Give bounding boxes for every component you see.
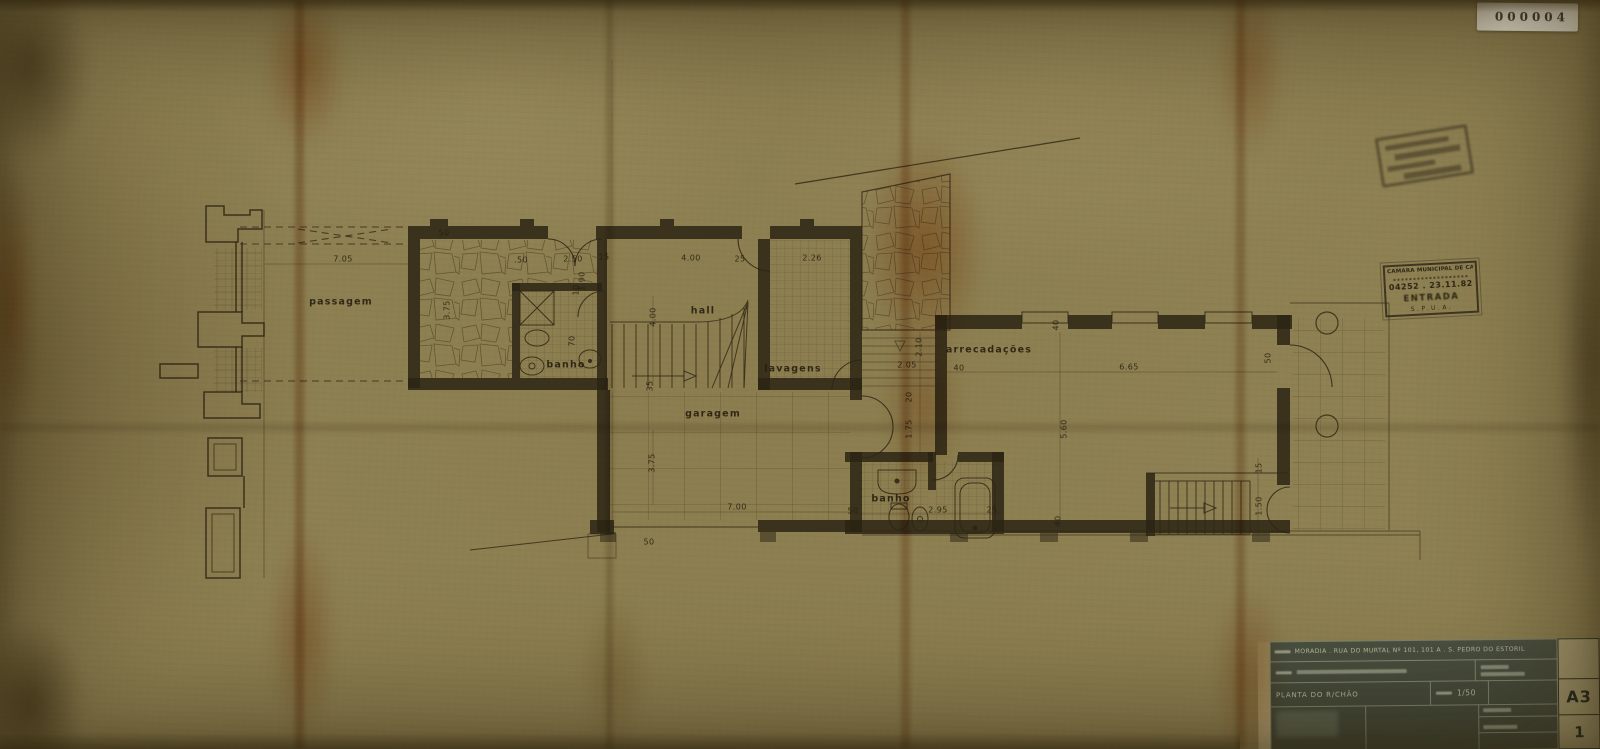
scanned-floor-plan-sheet: passagembanhohalllavagensgaragembanhoarr… bbox=[0, 0, 1600, 749]
sheet-number: 1 bbox=[1559, 715, 1599, 748]
illegible-text bbox=[1297, 669, 1407, 674]
illegible-text bbox=[1481, 671, 1525, 675]
illegible-text bbox=[1436, 692, 1452, 695]
signature-area bbox=[1276, 711, 1338, 738]
floor-plan-drawing bbox=[0, 0, 1600, 749]
project-title: MORADIA . RUA DO MURTAL Nº 101, 101 A . … bbox=[1295, 646, 1525, 655]
title-block-panel: MORADIA . RUA DO MURTAL Nº 101, 101 A . … bbox=[1269, 638, 1558, 749]
archive-number: 000004 bbox=[1495, 10, 1569, 25]
illegible-text bbox=[1275, 650, 1291, 653]
stamp-date: 23.11.82 bbox=[1429, 279, 1473, 290]
sheet-format: A3 bbox=[1559, 679, 1599, 715]
illegible-text bbox=[1483, 725, 1517, 729]
archive-number-label: 000004 bbox=[1477, 2, 1578, 31]
illegible-text bbox=[1481, 664, 1509, 668]
passage-dashed-lines bbox=[240, 227, 406, 381]
stamp-department: S.P.U.A. bbox=[1389, 303, 1475, 314]
drawing-scale: 1/50 bbox=[1457, 688, 1476, 697]
ramp-steps bbox=[862, 338, 940, 386]
drawing-title: PLANTA DO R/CHÃO bbox=[1276, 690, 1359, 699]
hall-staircase bbox=[610, 300, 748, 388]
illegible-text bbox=[1276, 671, 1292, 674]
title-block: MORADIA . RUA DO MURTAL Nº 101, 101 A . … bbox=[1257, 638, 1600, 749]
entry-stamp: CÂMARA MUNICIPAL DE CASCAIS 04252 . 23.1… bbox=[1383, 261, 1480, 318]
illegible-text bbox=[1483, 708, 1511, 712]
sheet-format-strip: A3 1 bbox=[1557, 638, 1600, 749]
stamp-number: 04252 bbox=[1389, 282, 1420, 293]
windows bbox=[1022, 312, 1252, 323]
